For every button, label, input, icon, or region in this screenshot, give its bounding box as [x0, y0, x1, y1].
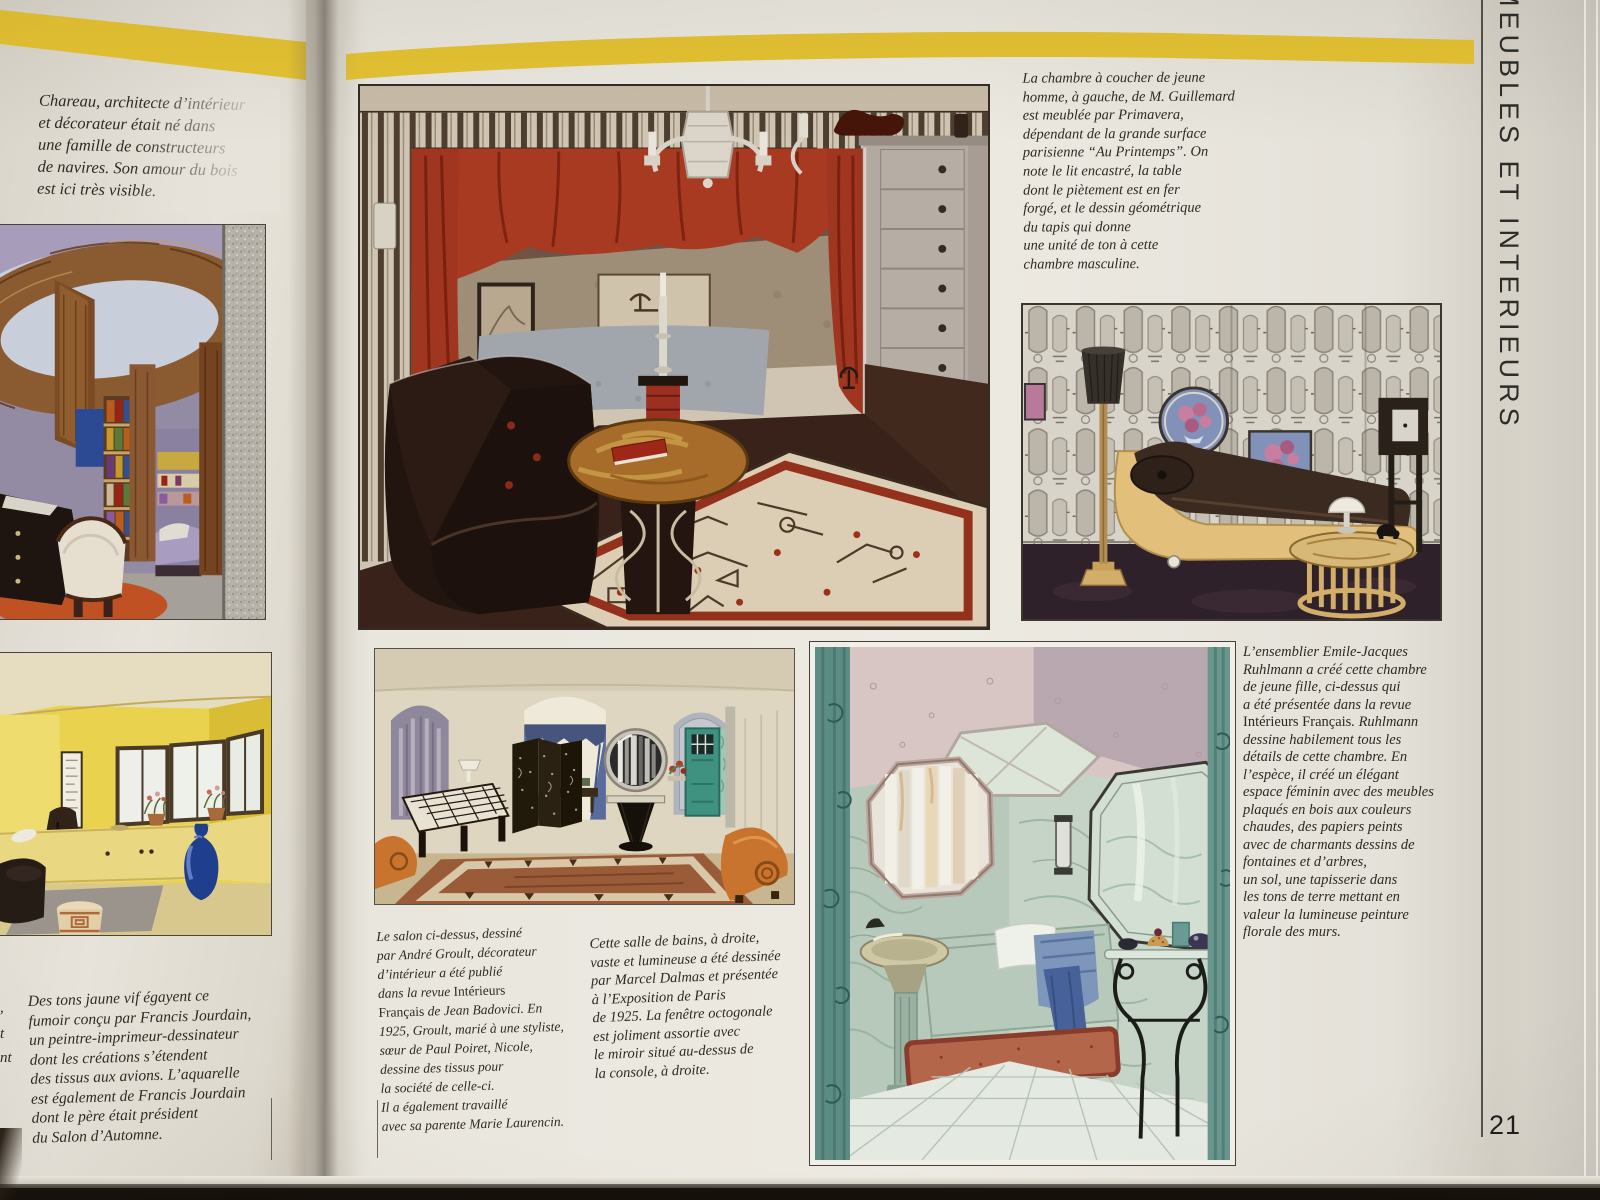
- dark-armchair: [0, 858, 46, 923]
- column-rule: [377, 1100, 378, 1158]
- round-mirror: [605, 729, 667, 791]
- caption-groult: Le salon ci-dessus, dessiné par André Gr…: [376, 921, 594, 1136]
- blue-panel: [76, 409, 106, 467]
- folding-screen: [512, 738, 582, 833]
- door-ornament: [374, 203, 396, 249]
- caption-dalmas: Cette salle de bains, à droite, vaste et…: [589, 927, 815, 1083]
- photo-background: [0, 1184, 1600, 1200]
- caption-chareau: Chareau, architecte d’intérieur et décor…: [37, 90, 271, 205]
- fumoir-illustration: [0, 652, 272, 936]
- small-urn: [954, 114, 968, 138]
- book-spread-photo: Chareau, architecte d’intérieur et décor…: [0, 0, 1600, 1200]
- textured-column: [225, 225, 265, 619]
- octagonal-window: [868, 759, 991, 897]
- far-room-doorway: [155, 429, 201, 576]
- page-edge-line: [1596, 0, 1598, 1188]
- cut-text-fragment: ,: [0, 1000, 4, 1017]
- caption-jourdain: Des tons jaune vif égayent ce fumoir con…: [28, 984, 283, 1148]
- cut-text-fragment: nt: [0, 1050, 12, 1067]
- ruhlmann-illustration: [1021, 303, 1442, 621]
- octagonal-stool: [57, 901, 103, 935]
- cut-text-fragment: t: [0, 1026, 4, 1043]
- right-niche: [668, 713, 728, 816]
- margin-rule: [1481, 0, 1483, 1137]
- column-rule: [271, 1098, 272, 1160]
- caption-ruhlmann: L’ensemblier Emile-Jacques Ruhlmann a cr…: [1243, 644, 1461, 942]
- wing-armchair: [385, 356, 599, 614]
- vertical-section-title: MEUBLES ET INTERIEURS: [1486, 0, 1524, 434]
- salon-illustration: [374, 648, 795, 905]
- page-number: 21: [1489, 1110, 1521, 1141]
- wall-sconce: [1054, 815, 1072, 875]
- caption-guillemard: La chambre à coucher de jeune homme, à g…: [1022, 68, 1261, 274]
- bedroom-illustration: [358, 84, 990, 630]
- page-edge-line: [1584, 0, 1586, 1188]
- pilaster: [725, 707, 735, 828]
- library-illustration: [0, 224, 266, 620]
- small-artwork: [1025, 384, 1045, 420]
- rug: [395, 853, 753, 904]
- bathroom-illustration: [809, 641, 1236, 1166]
